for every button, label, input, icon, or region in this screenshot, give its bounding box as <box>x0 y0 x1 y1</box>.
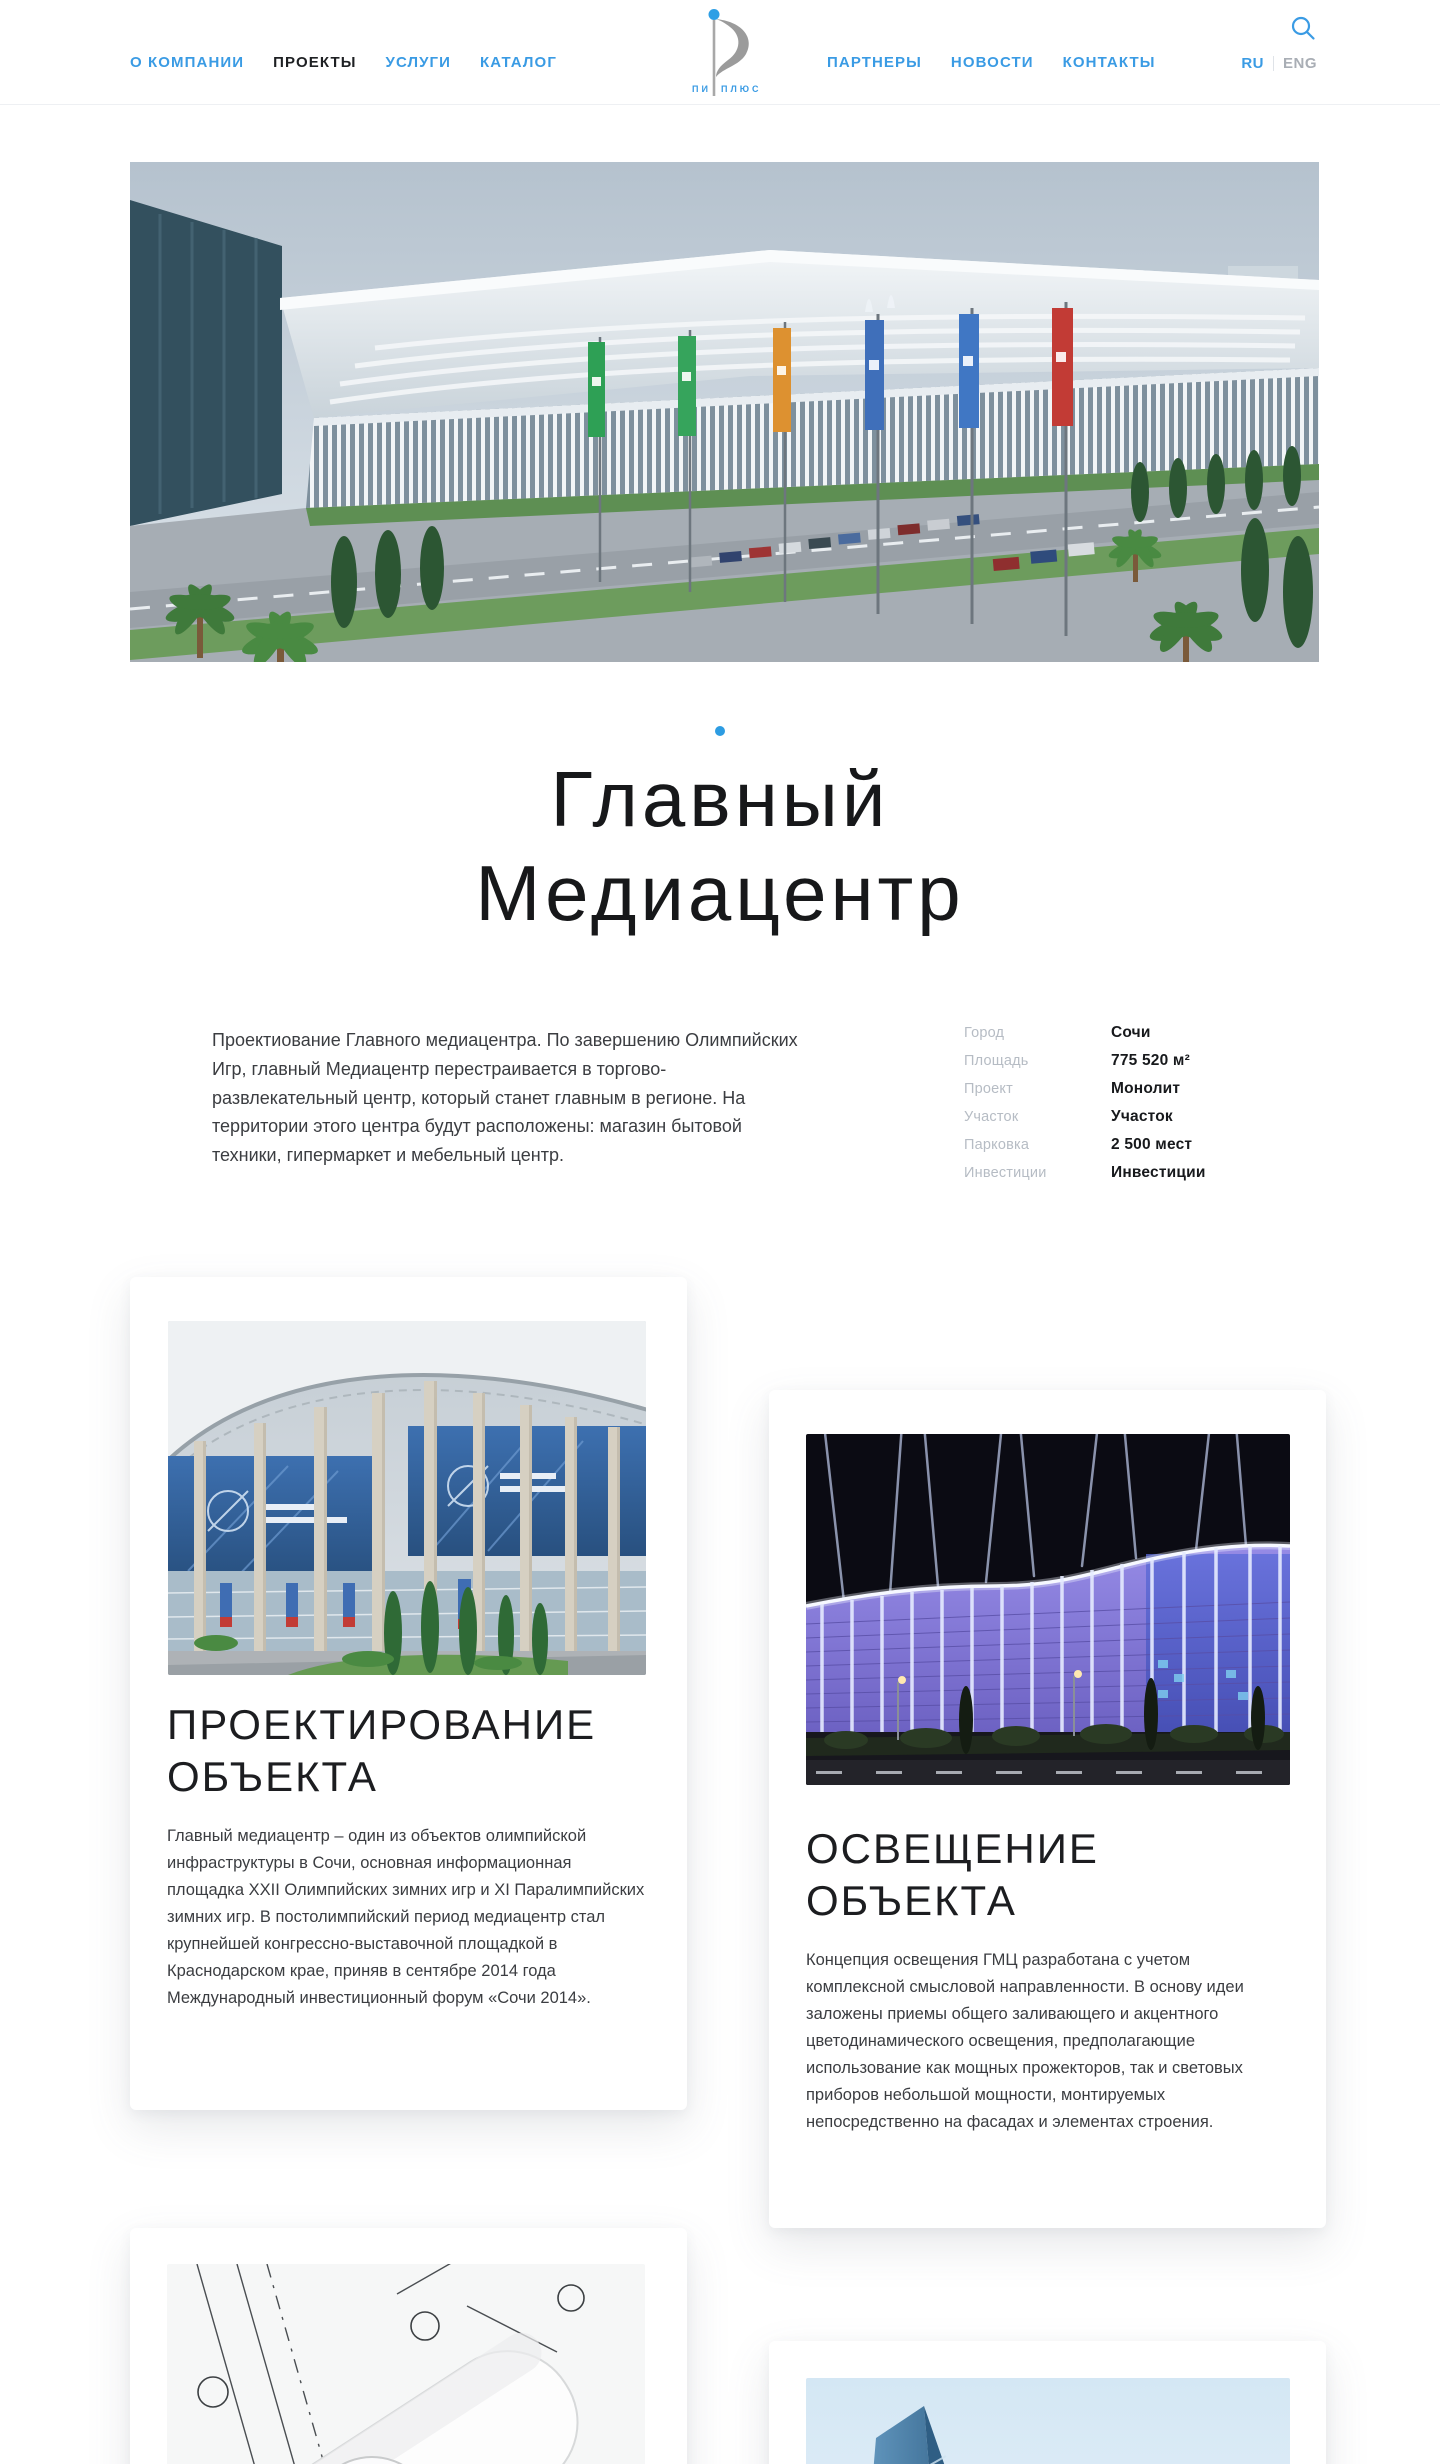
logo-text-right: ПЛЮС <box>721 84 761 94</box>
hero-image <box>130 162 1319 662</box>
card-lighting-image <box>806 1434 1290 1785</box>
card-blueprints <box>130 2228 687 2464</box>
lang-ru[interactable]: RU <box>1241 55 1264 72</box>
spec-label: Проект <box>964 1081 1111 1097</box>
nav-about[interactable]: О КОМПАНИИ <box>130 54 244 71</box>
card-design: ПРОЕКТИРОВАНИЕ ОБЪЕКТА Главный медиацент… <box>130 1277 687 2110</box>
skyscrapers-photo <box>806 2378 1290 2464</box>
spec-row-area: Площадь 775 520 м² <box>964 1052 1294 1070</box>
card-towers-image <box>806 2378 1290 2464</box>
nav-partners[interactable]: ПАРТНЕРЫ <box>827 54 922 71</box>
section-divider-dot <box>715 726 725 736</box>
main-nav-right: ПАРТНЕРЫ НОВОСТИ КОНТАКТЫ <box>827 54 1156 71</box>
spec-value: 2 500 мест <box>1111 1136 1192 1154</box>
page-title: Главный Медиацентр <box>0 752 1440 941</box>
spec-row-parking: Парковка 2 500 мест <box>964 1136 1294 1154</box>
card-lighting-text: Концепция освещения ГМЦ разработана с уч… <box>806 1947 1290 2135</box>
main-nav-left: О КОМПАНИИ ПРОЕКТЫ УСЛУГИ КАТАЛОГ <box>130 54 557 71</box>
card-towers <box>769 2341 1326 2464</box>
page-title-line-1: Главный <box>0 752 1440 846</box>
spec-row-plot: Участок Участок <box>964 1108 1294 1126</box>
spec-label: Город <box>964 1025 1111 1041</box>
spec-value: Инвестиции <box>1111 1164 1206 1182</box>
project-page: О КОМПАНИИ ПРОЕКТЫ УСЛУГИ КАТАЛОГ ПИ ПЛЮ… <box>0 0 1440 2464</box>
card-lighting: ОСВЕЩЕНИЕ ОБЪЕКТА Концепция освещения ГМ… <box>769 1390 1326 2228</box>
nav-projects[interactable]: ПРОЕКТЫ <box>273 54 356 71</box>
card-design-title: ПРОЕКТИРОВАНИЕ ОБЪЕКТА <box>167 1699 647 1803</box>
spec-label: Участок <box>964 1109 1111 1125</box>
card-design-text: Главный медиацентр – один из объектов ол… <box>167 1823 651 2011</box>
spec-label: Парковка <box>964 1137 1111 1153</box>
card-blueprints-image <box>167 2264 645 2464</box>
spec-value: Сочи <box>1111 1024 1151 1042</box>
nav-contacts[interactable]: КОНТАКТЫ <box>1063 54 1156 71</box>
logo-text-left: ПИ <box>692 84 711 94</box>
blueprint-roll-photo <box>167 2264 645 2464</box>
lang-divider <box>1273 56 1274 71</box>
language-switcher: RU ENG <box>1241 55 1317 72</box>
specs-list: Город Сочи Площадь 775 520 м² Проект Мон… <box>964 1024 1294 1192</box>
nav-news[interactable]: НОВОСТИ <box>951 54 1034 71</box>
spec-row-investments: Инвестиции Инвестиции <box>964 1164 1294 1182</box>
nav-catalog[interactable]: КАТАЛОГ <box>480 54 557 71</box>
spec-label: Инвестиции <box>964 1165 1111 1181</box>
company-logo[interactable]: ПИ ПЛЮС <box>668 8 772 100</box>
search-icon[interactable] <box>1290 15 1316 41</box>
media-center-aerial-render <box>130 162 1319 662</box>
site-header: О КОМПАНИИ ПРОЕКТЫ УСЛУГИ КАТАЛОГ ПИ ПЛЮ… <box>0 0 1440 105</box>
spec-value: 775 520 м² <box>1111 1052 1190 1070</box>
logo-mark-icon: ПИ ПЛЮС <box>668 8 772 100</box>
spec-row-city: Город Сочи <box>964 1024 1294 1042</box>
nav-services[interactable]: УСЛУГИ <box>386 54 452 71</box>
card-lighting-title: ОСВЕЩЕНИЕ ОБЪЕКТА <box>806 1823 1290 1927</box>
lang-eng[interactable]: ENG <box>1283 55 1317 72</box>
spec-row-project: Проект Монолит <box>964 1080 1294 1098</box>
page-title-line-2: Медиацентр <box>0 846 1440 940</box>
intro-paragraph: Проектиование Главного медиацентра. По з… <box>212 1026 812 1170</box>
night-illumination-photo <box>806 1434 1290 1785</box>
spec-value: Участок <box>1111 1108 1173 1126</box>
spec-value: Монолит <box>1111 1080 1180 1098</box>
expocentre-photo <box>168 1321 646 1675</box>
spec-label: Площадь <box>964 1053 1111 1069</box>
card-design-image <box>168 1321 646 1675</box>
